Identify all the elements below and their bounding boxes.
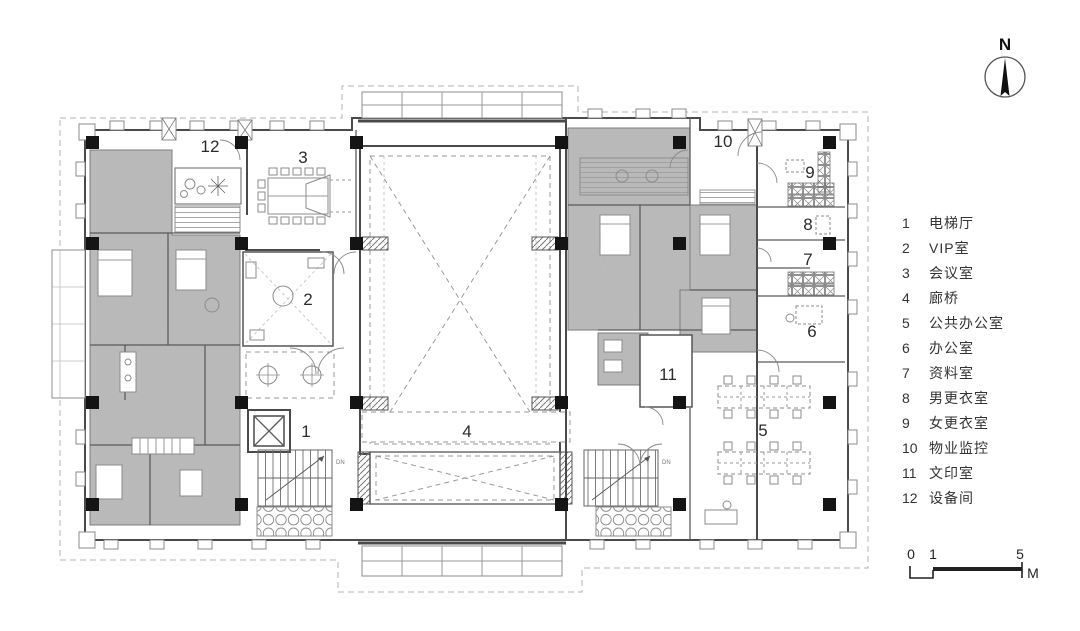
legend-item-label: 电梯厅	[929, 211, 974, 236]
legend-item: 4 廊桥	[902, 286, 1004, 311]
planter-bed	[175, 168, 241, 232]
legend-item: 2 VIP室	[902, 236, 1004, 261]
legend-item-number: 11	[902, 461, 929, 486]
atrium-void	[360, 146, 560, 454]
legend-item: 5 公共办公室	[902, 311, 1004, 336]
scale-bar: 0 1 5 M	[907, 546, 1039, 581]
room-label-10: 10	[714, 132, 733, 151]
legend-item-number: 12	[902, 486, 929, 511]
legend-item: 12 设备间	[902, 486, 1004, 511]
facade-grid-top	[358, 92, 566, 121]
legend-item: 9 女更衣室	[902, 411, 1004, 436]
room-label-11: 11	[659, 365, 677, 384]
legend-item-label: 办公室	[929, 336, 974, 361]
scale-unit: M	[1027, 565, 1039, 581]
left-balcony	[52, 250, 85, 398]
legend-item-number: 9	[902, 411, 929, 436]
room-label-8: 8	[803, 215, 812, 234]
scale-tick-0: 0	[907, 546, 915, 562]
floor-plan-page: DN DN	[0, 0, 1080, 631]
legend-item-number: 1	[902, 211, 929, 236]
legend-item-label: 廊桥	[929, 286, 959, 311]
legend-item-label: 男更衣室	[929, 386, 989, 411]
north-label: N	[999, 35, 1011, 54]
legend-item-label: 设备间	[929, 486, 974, 511]
vip-room	[243, 252, 333, 346]
room-label-2: 2	[303, 290, 312, 309]
room-label-7: 7	[803, 250, 812, 269]
legend-item: 7 资料室	[902, 361, 1004, 386]
legend-item-label: 文印室	[929, 461, 974, 486]
room-label-12: 12	[201, 137, 220, 156]
lower-lightwell	[358, 452, 572, 504]
legend-item-number: 2	[902, 236, 929, 261]
legend-item: 1 电梯厅	[902, 211, 1004, 236]
legend-item-label: 女更衣室	[929, 411, 989, 436]
legend-item-number: 5	[902, 311, 929, 336]
scale-tick-1: 1	[929, 546, 937, 562]
room-label-1: 1	[301, 422, 310, 441]
legend-item-label: 物业监控	[929, 436, 989, 461]
legend: 1 电梯厅 2 VIP室 3 会议室 4 廊桥 5 公共办公室 6 办公室 7 …	[902, 211, 1004, 511]
legend-item-number: 3	[902, 261, 929, 286]
north-arrow: N	[985, 35, 1025, 97]
legend-item-label: 公共办公室	[929, 311, 1004, 336]
terrace-grid	[358, 543, 566, 576]
legend-item-number: 6	[902, 336, 929, 361]
scale-bar-segment	[933, 567, 1022, 571]
legend-item-number: 10	[902, 436, 929, 461]
stairs-left: DN	[258, 450, 345, 506]
legend-item: 11 文印室	[902, 461, 1004, 486]
compass-icon	[985, 57, 1025, 97]
legend-item: 3 会议室	[902, 261, 1004, 286]
legend-item-label: VIP室	[929, 236, 970, 261]
room-label-9: 9	[805, 163, 814, 182]
paver-circles-right	[596, 507, 671, 536]
room-label-6: 6	[807, 322, 816, 341]
legend-item: 6 办公室	[902, 336, 1004, 361]
legend-item-number: 7	[902, 361, 929, 386]
elevator-shaft	[248, 410, 290, 452]
vanity-area	[246, 352, 334, 398]
legend-item-number: 4	[902, 286, 929, 311]
stairs-right: DN	[584, 450, 671, 506]
legend-item-number: 8	[902, 386, 929, 411]
legend-item-label: 资料室	[929, 361, 974, 386]
scale-tick-5: 5	[1016, 546, 1024, 562]
paver-circles-left	[257, 507, 332, 536]
legend-item-label: 会议室	[929, 261, 974, 286]
room-label-5: 5	[758, 421, 767, 440]
legend-item: 10 物业监控	[902, 436, 1004, 461]
stair-mark-left: DN	[336, 460, 345, 466]
legend-item: 8 男更衣室	[902, 386, 1004, 411]
stair-mark-right: DN	[662, 460, 671, 466]
room-label-3: 3	[298, 148, 307, 167]
room-label-4: 4	[462, 422, 471, 441]
